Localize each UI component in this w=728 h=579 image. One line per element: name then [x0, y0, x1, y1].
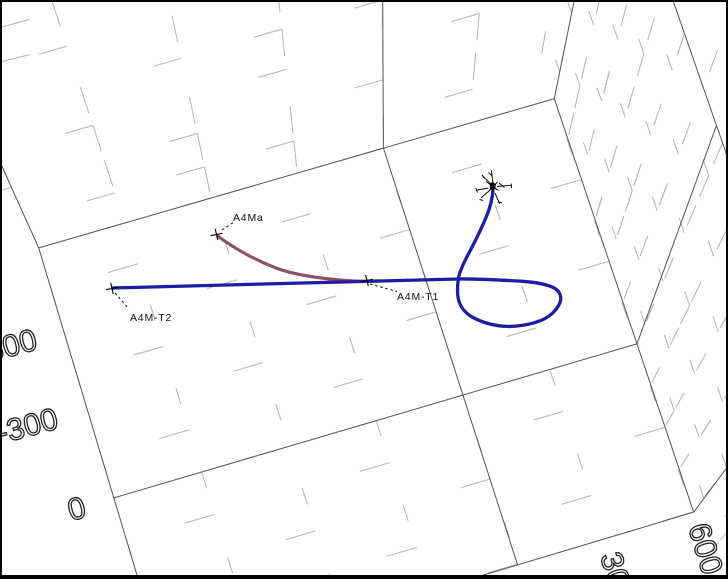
svg-text:A4M-T2: A4M-T2 — [130, 312, 172, 324]
svg-text:A4M-T1: A4M-T1 — [397, 291, 439, 303]
svg-text:A4Ma: A4Ma — [233, 212, 264, 224]
